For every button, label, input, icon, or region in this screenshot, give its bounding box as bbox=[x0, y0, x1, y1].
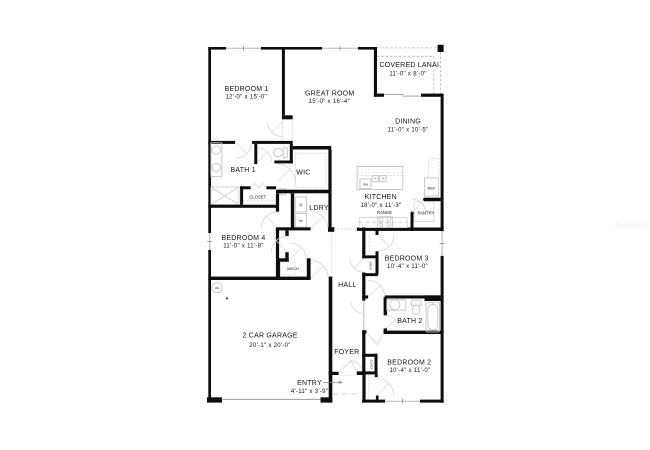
svg-text:PANTRY: PANTRY bbox=[417, 210, 434, 215]
svg-text:WIC: WIC bbox=[296, 170, 310, 177]
svg-text:BEDROOM 3: BEDROOM 3 bbox=[385, 256, 429, 263]
svg-text:12'-0" x 15'-0": 12'-0" x 15'-0" bbox=[225, 94, 266, 100]
svg-text:LINEN: LINEN bbox=[369, 262, 373, 271]
svg-text:FOYER: FOYER bbox=[334, 349, 359, 356]
svg-text:20'-1" x 20'-0": 20'-1" x 20'-0" bbox=[249, 343, 290, 349]
svg-text:10'-4" x 11'-0": 10'-4" x 11'-0" bbox=[390, 368, 431, 374]
svg-text:StellarMLS: StellarMLS bbox=[615, 223, 648, 230]
svg-text:DW: DW bbox=[363, 182, 368, 186]
svg-text:2 CAR GARAGE: 2 CAR GARAGE bbox=[243, 333, 298, 340]
svg-text:BEDROOM 4: BEDROOM 4 bbox=[222, 235, 266, 242]
svg-text:WH: WH bbox=[215, 286, 220, 290]
svg-text:11'-0" x 10'-5": 11'-0" x 10'-5" bbox=[388, 128, 429, 134]
svg-text:11'-0" x 11'-8": 11'-0" x 11'-8" bbox=[223, 244, 264, 250]
svg-text:10'-4" x 11'-0": 10'-4" x 11'-0" bbox=[387, 264, 428, 270]
svg-text:4'-11" x 3'-9": 4'-11" x 3'-9" bbox=[291, 389, 328, 395]
svg-text:BEDROOM 1: BEDROOM 1 bbox=[225, 86, 269, 93]
svg-text:COVERED LANAI: COVERED LANAI bbox=[379, 62, 439, 69]
svg-text:MECH: MECH bbox=[287, 266, 299, 271]
svg-text:ENTRY: ENTRY bbox=[297, 380, 322, 387]
svg-text:CLOSET: CLOSET bbox=[249, 194, 266, 199]
svg-text:KITCHEN: KITCHEN bbox=[365, 194, 397, 201]
svg-text:HALL: HALL bbox=[338, 282, 356, 289]
svg-text:BATH 1: BATH 1 bbox=[231, 167, 256, 174]
svg-text:GREAT ROOM: GREAT ROOM bbox=[305, 91, 354, 98]
svg-text:REF: REF bbox=[428, 185, 437, 190]
svg-text:11'-0" x 8'-0": 11'-0" x 8'-0" bbox=[389, 71, 426, 77]
svg-text:18'-0" x 11'-3": 18'-0" x 11'-3" bbox=[361, 203, 402, 209]
svg-text:RANGE: RANGE bbox=[377, 210, 392, 215]
svg-text:BATH 2: BATH 2 bbox=[397, 318, 422, 325]
svg-text:15'-0" x 16'-4": 15'-0" x 16'-4" bbox=[309, 99, 350, 105]
svg-text:DINING: DINING bbox=[395, 119, 421, 126]
svg-text:W: W bbox=[299, 219, 303, 223]
svg-text:BEDROOM 2: BEDROOM 2 bbox=[387, 360, 431, 367]
svg-text:LDRY: LDRY bbox=[309, 205, 329, 212]
svg-text:COATS: COATS bbox=[370, 359, 374, 369]
svg-text:D: D bbox=[300, 203, 303, 207]
